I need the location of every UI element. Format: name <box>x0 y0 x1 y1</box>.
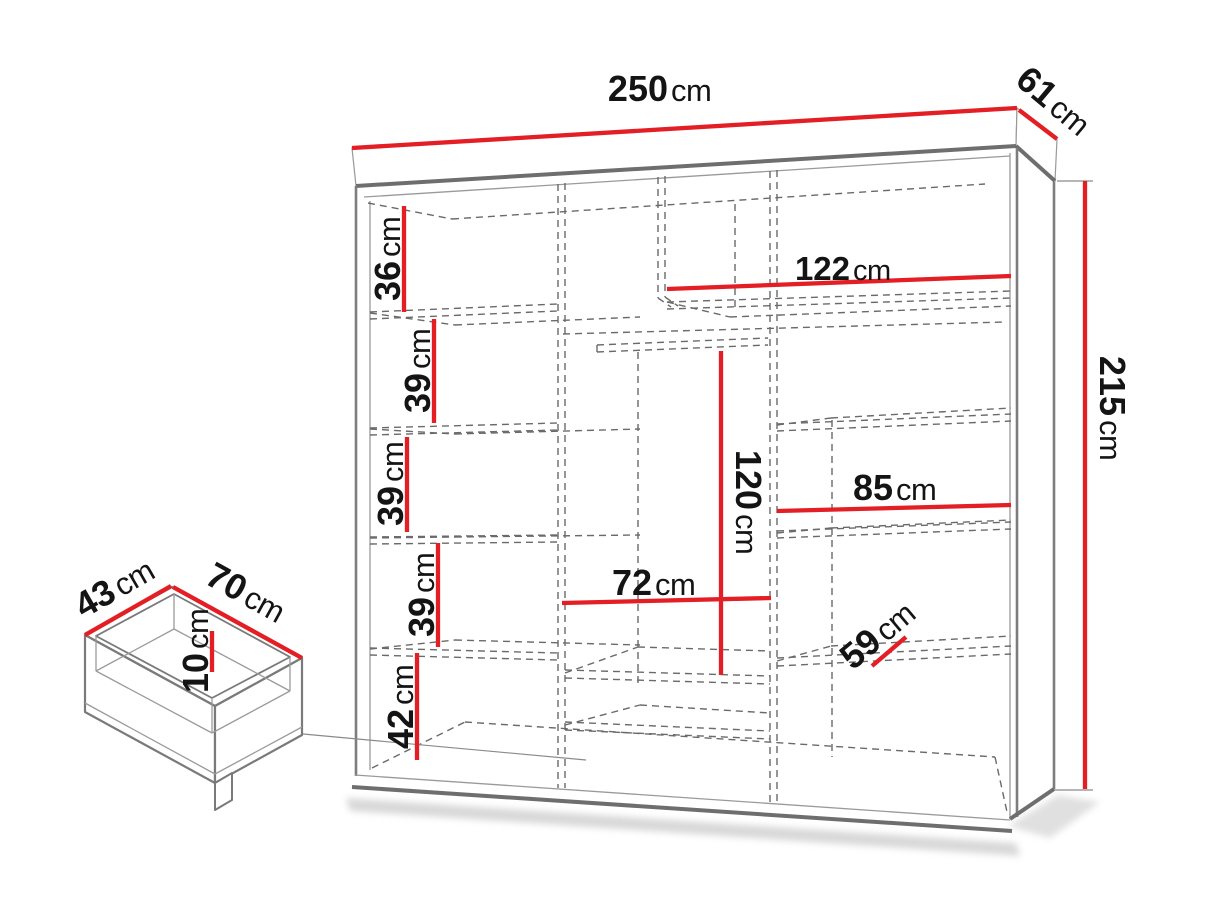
shelf-42-unit: cm <box>385 665 420 705</box>
shelf-39b-unit: cm <box>375 442 410 482</box>
middle-72-value: 72 <box>612 562 652 603</box>
drawer-leader-line <box>303 734 586 760</box>
top-panel-front <box>352 108 1017 186</box>
dim-label-height-215: 215 cm <box>1092 356 1133 460</box>
height-value: 215 <box>1092 356 1133 416</box>
shelf-42-value: 42 <box>380 709 421 749</box>
shelf-36-unit: cm <box>372 217 407 257</box>
shelf-85-unit: cm <box>896 472 936 507</box>
dim-label-shelf-85: 85 cm <box>853 467 936 508</box>
height-unit: cm <box>1093 420 1128 460</box>
shelf-122-unit: cm <box>853 255 891 287</box>
shelf-39c-unit: cm <box>406 553 441 593</box>
wardrobe-structure <box>352 108 1057 831</box>
hanging-120-unit: cm <box>729 514 764 554</box>
shelf-122-value: 122 <box>795 250 850 287</box>
middle-72-unit: cm <box>655 567 695 602</box>
drawer-10-unit: cm <box>180 609 215 649</box>
shelf-39b-value: 39 <box>370 486 411 526</box>
dim-label-shelf-122: 122 cm <box>795 250 891 287</box>
wardrobe-technical-drawing: 250 cm 61 cm 215 cm 36 cm 39 cm 39 cm 39… <box>0 0 1214 911</box>
dim-line-shelf-85 <box>777 505 1011 511</box>
shelf-39a-unit: cm <box>402 329 437 369</box>
drawer-10-value: 10 <box>175 653 216 693</box>
shelf-39c-value: 39 <box>401 597 442 637</box>
shelf-36-value: 36 <box>367 261 408 301</box>
shelf-39a-value: 39 <box>397 373 438 413</box>
dim-label-width-250: 250 cm <box>608 68 711 109</box>
dim-label-hanging-120: 120 cm <box>728 450 769 554</box>
floor-shadow <box>346 795 1100 856</box>
hanging-120-value: 120 <box>728 450 769 510</box>
shelf-85-value: 85 <box>853 467 893 508</box>
diagram-canvas: 250 cm 61 cm 215 cm 36 cm 39 cm 39 cm 39… <box>0 0 1214 911</box>
width-unit: cm <box>671 73 711 108</box>
width-value: 250 <box>608 68 668 109</box>
dim-label-middle-72: 72 cm <box>612 562 695 603</box>
